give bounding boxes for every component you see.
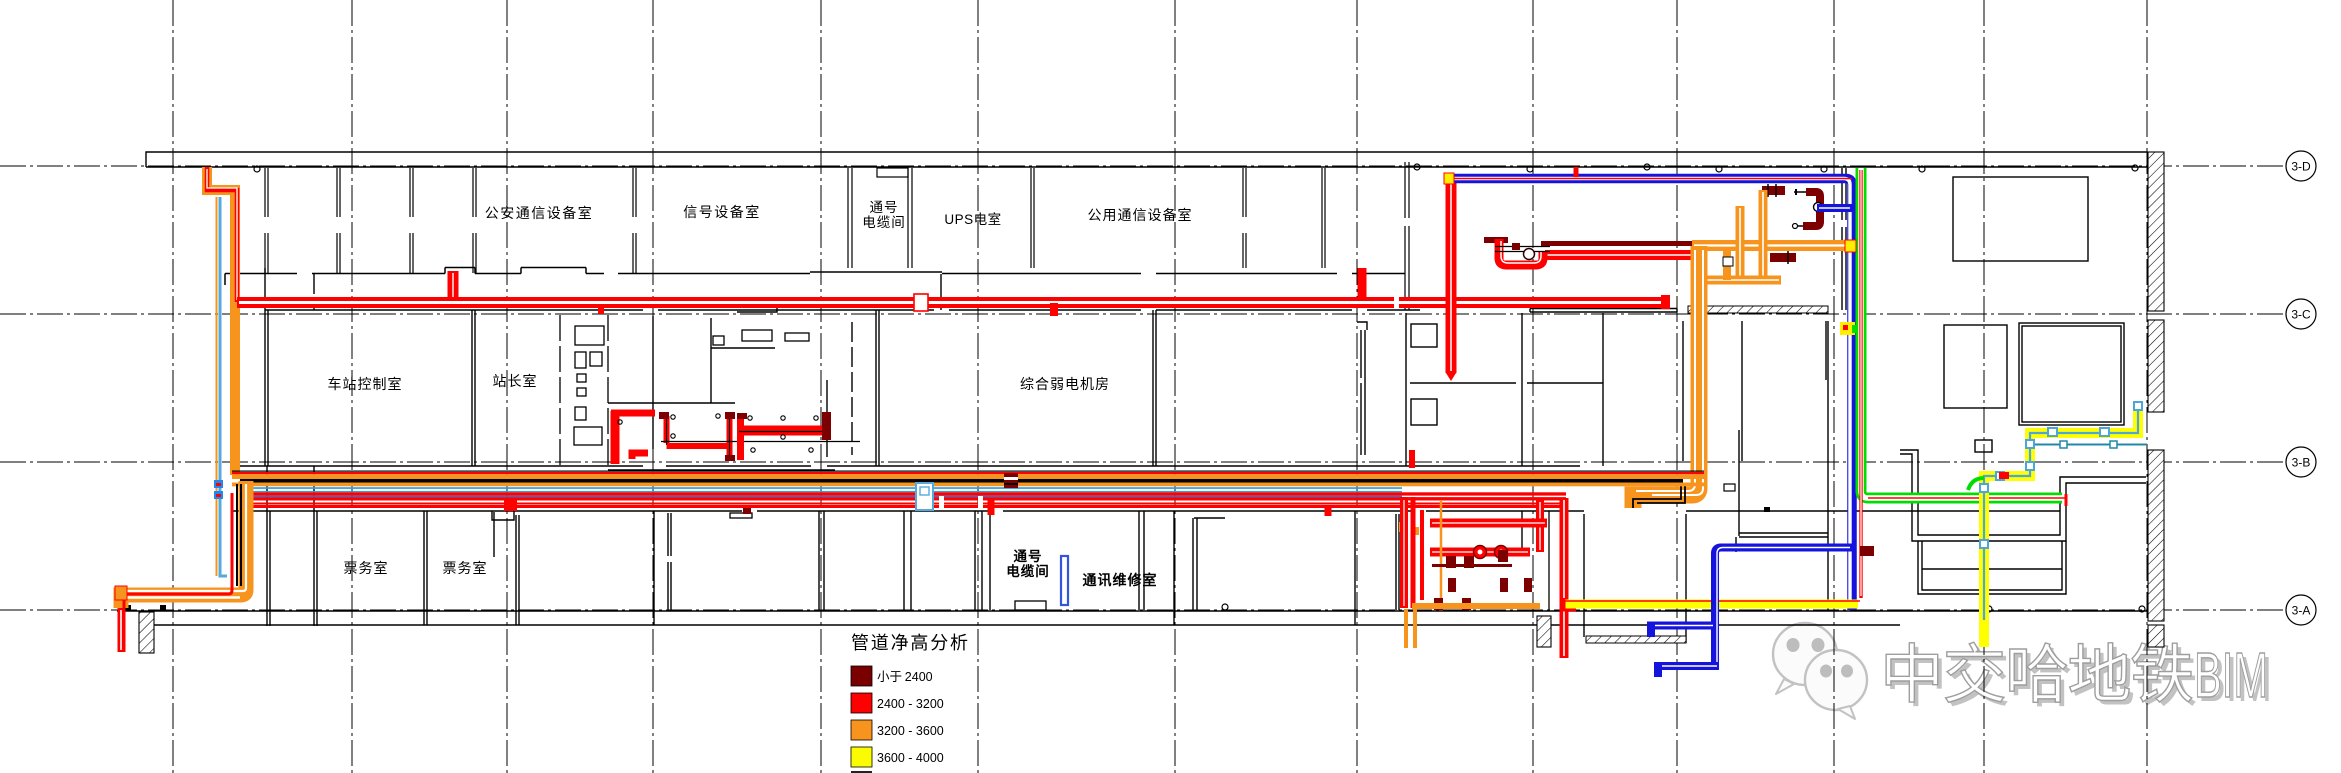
svg-text:3200 - 3600: 3200 - 3600 [877,724,944,738]
svg-text:电缆间: 电缆间 [862,211,906,231]
svg-text:车站控制室: 车站控制室 [328,374,403,394]
svg-text:UPS电室: UPS电室 [944,208,1001,228]
svg-text:3-C: 3-C [2291,308,2311,322]
svg-text:通讯维修室: 通讯维修室 [1083,570,1158,590]
svg-text:公用通信设备室: 公用通信设备室 [1088,205,1193,225]
svg-text:票务室: 票务室 [344,558,389,578]
svg-text:票务室: 票务室 [443,558,488,578]
svg-text:3600 - 4000: 3600 - 4000 [877,751,944,765]
svg-text:2400 - 3200: 2400 - 3200 [877,697,944,711]
svg-text:管道净高分析: 管道净高分析 [851,629,970,655]
svg-text:BIM: BIM [2194,624,2268,716]
svg-text:综合弱电机房: 综合弱电机房 [1020,374,1110,394]
svg-text:3-A: 3-A [2292,604,2311,618]
svg-text:中交哈地铁: 中交哈地铁 [1880,624,2193,716]
svg-text:电缆间: 电缆间 [1006,560,1050,580]
svg-text:信号设备室: 信号设备室 [683,202,761,222]
svg-text:小于 2400: 小于 2400 [877,666,933,685]
svg-text:3-B: 3-B [2292,456,2311,470]
svg-text:3-D: 3-D [2291,160,2311,174]
svg-text:站长室: 站长室 [493,371,538,391]
svg-text:公安通信设备室: 公安通信设备室 [485,203,594,223]
